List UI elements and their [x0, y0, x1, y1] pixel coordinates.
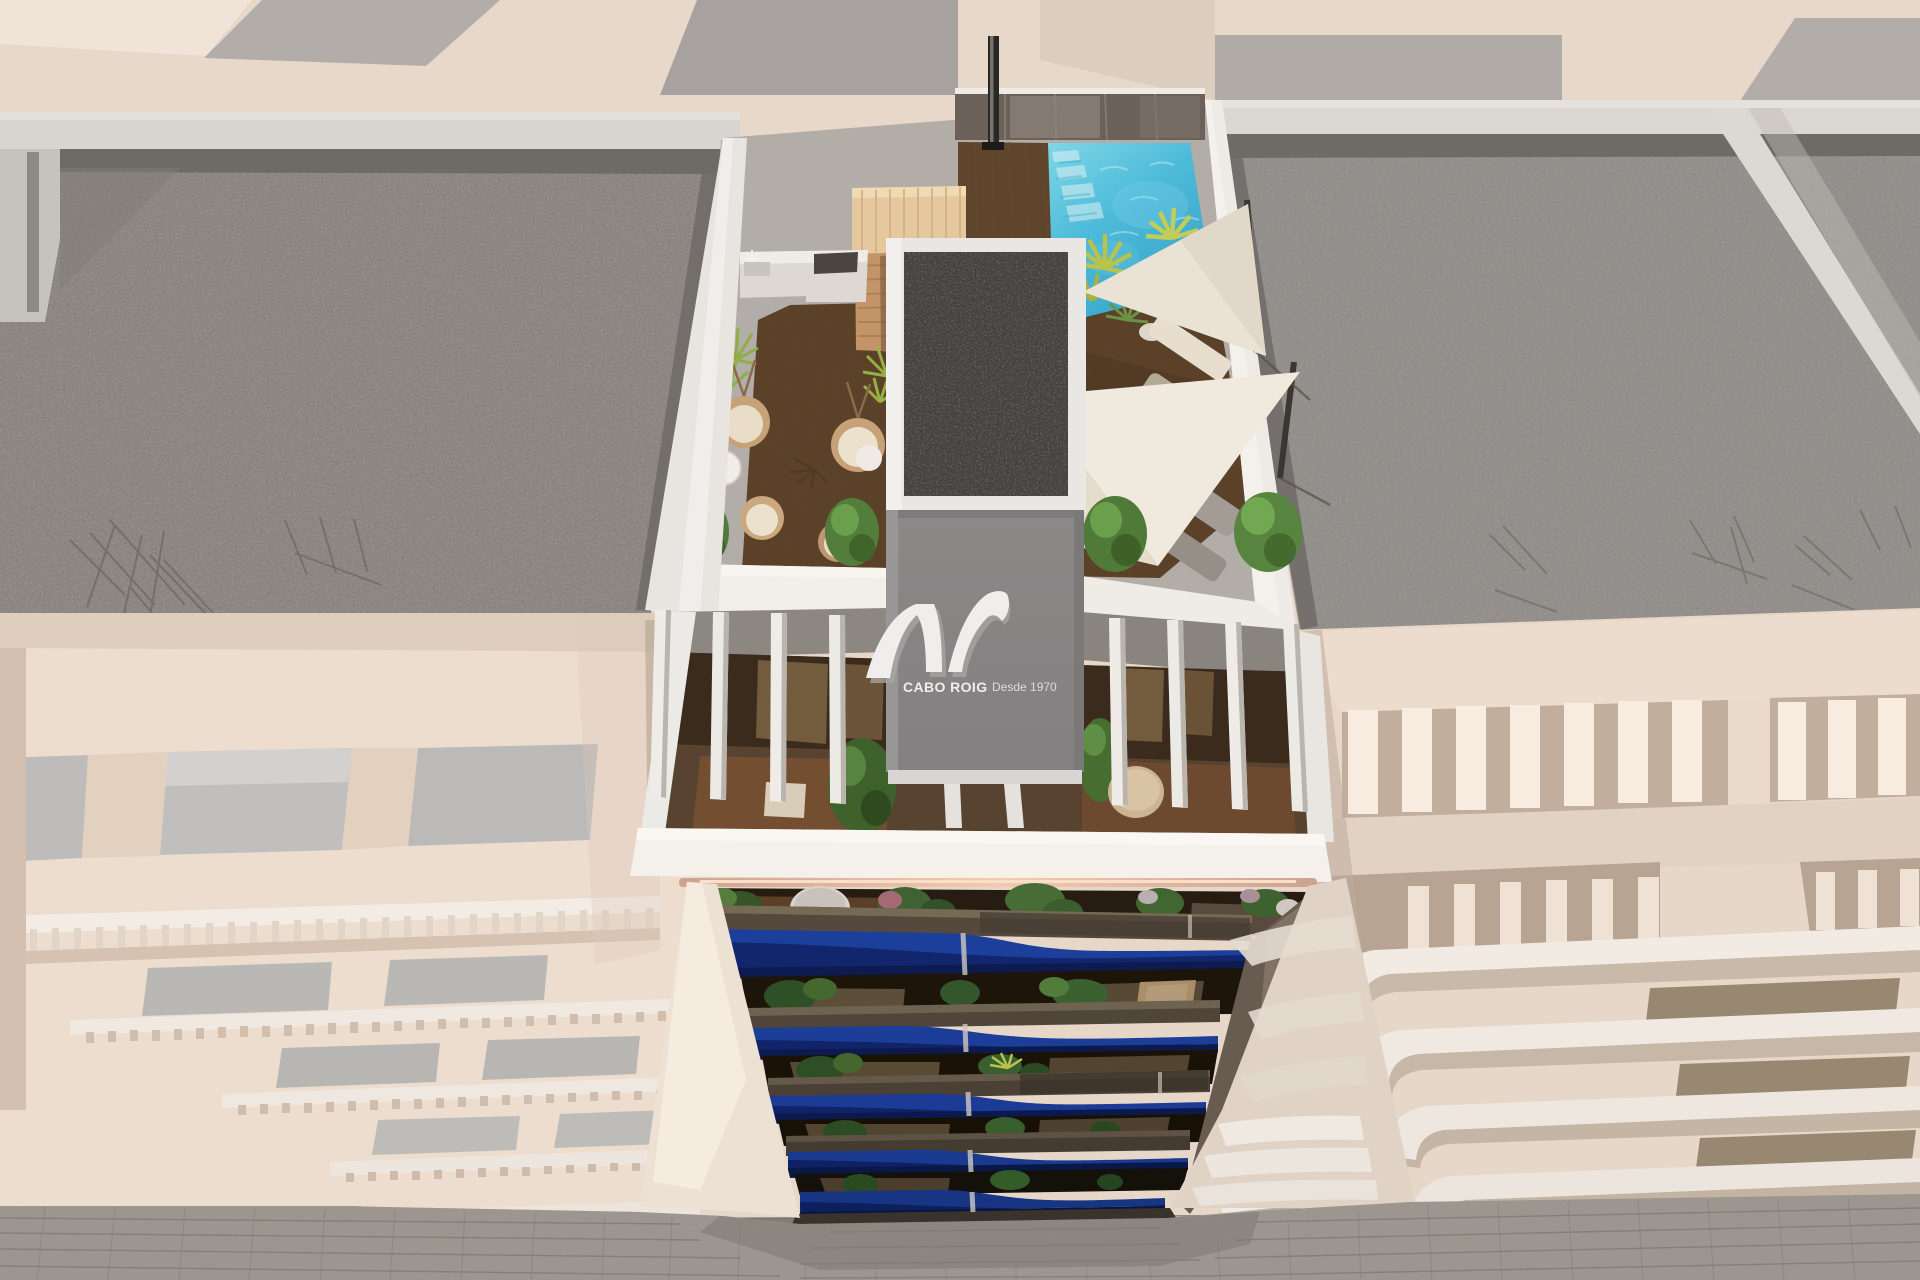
svg-text:CABO ROIG: CABO ROIG [903, 679, 988, 695]
svg-text:Desde 1970: Desde 1970 [992, 680, 1057, 694]
